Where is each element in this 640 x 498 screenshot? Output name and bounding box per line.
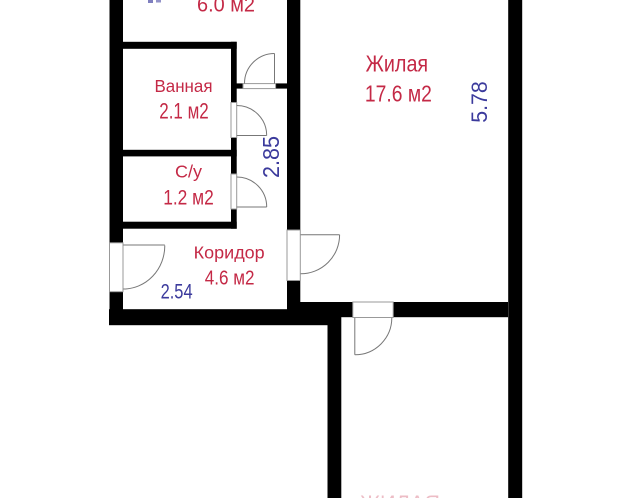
svg-text:17.6 м2: 17.6 м2 <box>365 81 432 107</box>
svg-text:Коридор: Коридор <box>194 243 265 263</box>
svg-text:Ванная: Ванная <box>155 76 213 96</box>
svg-text:С/у: С/у <box>175 162 202 182</box>
svg-text:2.1 м2: 2.1 м2 <box>159 98 209 123</box>
svg-text:ЖИЛАЯ: ЖИЛАЯ <box>360 491 440 498</box>
svg-text:2.54: 2.54 <box>161 281 193 304</box>
svg-text:Жилая: Жилая <box>366 51 429 77</box>
svg-text:4.6 м2: 4.6 м2 <box>205 268 255 290</box>
svg-text:5.78: 5.78 <box>467 81 492 123</box>
svg-text:2.85: 2.85 <box>258 136 284 178</box>
svg-text:1.2 м2: 1.2 м2 <box>163 187 214 210</box>
svg-text:6.0 м2: 6.0 м2 <box>197 0 255 17</box>
